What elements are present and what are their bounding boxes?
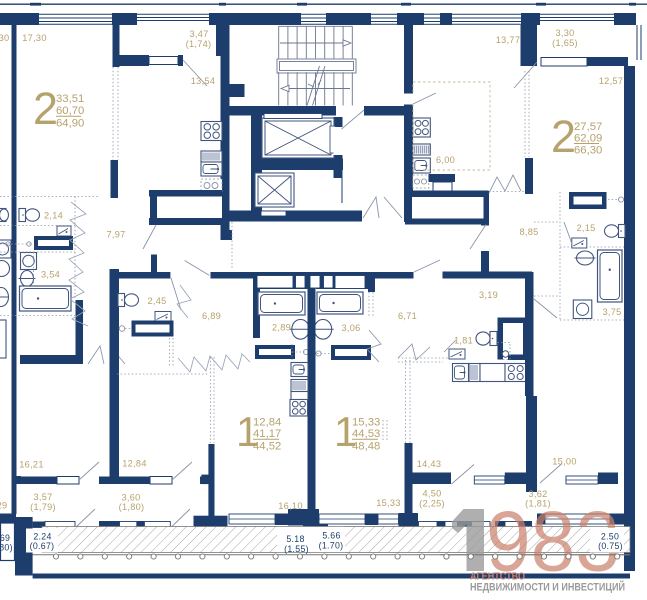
svg-text:48,48: 48,48 bbox=[352, 441, 380, 453]
svg-text:80): 80) bbox=[0, 543, 13, 553]
svg-text:(2,25): (2,25) bbox=[419, 499, 445, 509]
svg-text:44,53: 44,53 bbox=[352, 428, 380, 440]
svg-text:6,00: 6,00 bbox=[436, 155, 455, 165]
svg-text:66,30: 66,30 bbox=[574, 145, 602, 157]
svg-text:(1.55): (1.55) bbox=[284, 544, 309, 554]
svg-text:2.24: 2.24 bbox=[33, 532, 51, 542]
svg-text:64,90: 64,90 bbox=[56, 118, 84, 130]
svg-text:16,21: 16,21 bbox=[19, 460, 44, 470]
svg-text:3,60: 3,60 bbox=[121, 493, 140, 503]
svg-text:12,84: 12,84 bbox=[122, 459, 147, 469]
svg-text:3,06: 3,06 bbox=[341, 323, 360, 333]
svg-text:13,54: 13,54 bbox=[191, 76, 216, 86]
svg-text:2,89: 2,89 bbox=[272, 323, 291, 333]
svg-text:30: 30 bbox=[0, 33, 9, 43]
svg-text:6,89: 6,89 bbox=[202, 311, 221, 321]
svg-text:2,45: 2,45 bbox=[147, 296, 166, 306]
svg-text:2,14: 2,14 bbox=[44, 211, 63, 221]
svg-text:(1,74): (1,74) bbox=[186, 39, 212, 49]
svg-text:41,17: 41,17 bbox=[253, 428, 281, 440]
svg-text:15,33: 15,33 bbox=[376, 498, 401, 508]
svg-text:(0.75): (0.75) bbox=[598, 541, 623, 551]
svg-text:12,84: 12,84 bbox=[253, 417, 281, 429]
svg-text:13,77: 13,77 bbox=[496, 35, 521, 45]
svg-text:3,57: 3,57 bbox=[33, 492, 52, 502]
svg-text:5.18: 5.18 bbox=[286, 534, 304, 544]
svg-text:(1,79): (1,79) bbox=[30, 502, 56, 512]
svg-text:33,51: 33,51 bbox=[56, 93, 84, 105]
svg-text:12,57: 12,57 bbox=[599, 76, 624, 86]
svg-text:15,33: 15,33 bbox=[352, 417, 380, 429]
svg-text:14,43: 14,43 bbox=[417, 459, 442, 469]
svg-text:(1,80): (1,80) bbox=[119, 502, 145, 512]
svg-text:7,97: 7,97 bbox=[106, 230, 125, 240]
svg-text:3,30: 3,30 bbox=[555, 28, 574, 38]
svg-text:27,57: 27,57 bbox=[574, 121, 602, 133]
svg-text:29: 29 bbox=[0, 501, 7, 511]
svg-text:(1,65): (1,65) bbox=[552, 38, 578, 48]
svg-text:(1.70): (1.70) bbox=[319, 541, 344, 551]
svg-text:(0.67): (0.67) bbox=[30, 541, 55, 551]
svg-text:3,75: 3,75 bbox=[602, 307, 621, 317]
svg-text:62,09: 62,09 bbox=[574, 133, 602, 145]
svg-text:6,71: 6,71 bbox=[398, 311, 417, 321]
svg-text:3,54: 3,54 bbox=[41, 270, 60, 280]
svg-text:2,15: 2,15 bbox=[576, 223, 595, 233]
svg-text:2: 2 bbox=[551, 111, 576, 162]
svg-text:44,52: 44,52 bbox=[253, 441, 281, 453]
svg-text:8,85: 8,85 bbox=[519, 227, 538, 237]
svg-text:17,30: 17,30 bbox=[22, 33, 47, 43]
svg-text:2.50: 2.50 bbox=[601, 532, 619, 542]
svg-text:15,00: 15,00 bbox=[552, 457, 577, 467]
svg-text:69: 69 bbox=[0, 533, 10, 543]
svg-text:НЕДВИЖИМОСТИ И ИНВЕСТИЦИЙ: НЕДВИЖИМОСТИ И ИНВЕСТИЦИЙ bbox=[470, 581, 625, 594]
svg-text:2: 2 bbox=[33, 83, 58, 134]
svg-text:4,50: 4,50 bbox=[422, 489, 441, 499]
svg-text:1,81: 1,81 bbox=[454, 336, 473, 346]
svg-text:3,47: 3,47 bbox=[189, 29, 208, 39]
svg-text:3,19: 3,19 bbox=[479, 290, 498, 300]
svg-text:16,10: 16,10 bbox=[278, 501, 303, 511]
svg-text:60,70: 60,70 bbox=[56, 105, 84, 117]
svg-text:5.66: 5.66 bbox=[322, 531, 340, 541]
